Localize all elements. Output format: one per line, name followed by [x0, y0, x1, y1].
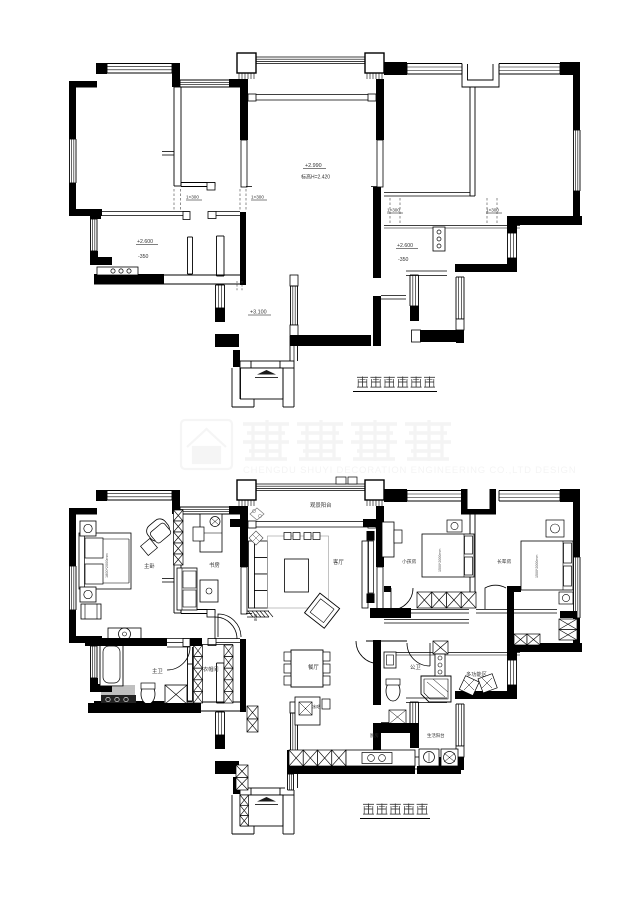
svg-text:厨房: 厨房 — [370, 732, 379, 739]
svg-text:1×300: 1×300 — [186, 195, 199, 200]
svg-text:衣帽间: 衣帽间 — [203, 665, 219, 673]
svg-text:-350: -350 — [398, 257, 408, 263]
svg-text:+3.100: +3.100 — [250, 310, 267, 316]
svg-text:1500*2000mm: 1500*2000mm — [438, 549, 442, 572]
svg-text:+2.990: +2.990 — [305, 163, 322, 169]
svg-text:书房: 书房 — [209, 561, 220, 569]
svg-text:CHENGDU SHUYI DECORATION ENGIN: CHENGDU SHUYI DECORATION ENGINEERING CO.… — [243, 465, 576, 476]
svg-text:主卫: 主卫 — [152, 667, 163, 675]
svg-text:公卫: 公卫 — [410, 664, 421, 671]
svg-text:1800*2000mm: 1800*2000mm — [105, 553, 109, 578]
svg-text:小孩房: 小孩房 — [402, 558, 417, 565]
svg-text:生活阳台: 生活阳台 — [427, 732, 445, 739]
svg-text:+2.600: +2.600 — [137, 239, 153, 245]
svg-text:-350: -350 — [138, 254, 148, 260]
svg-text:+2.600: +2.600 — [397, 243, 413, 249]
svg-text:1500*2000mm: 1500*2000mm — [535, 555, 539, 578]
svg-text:水吧: 水吧 — [312, 704, 321, 710]
svg-text:800: 800 — [253, 613, 258, 621]
svg-text:长辈房: 长辈房 — [497, 558, 512, 565]
svg-text:餐厅: 餐厅 — [308, 663, 319, 671]
svg-text:客厅: 客厅 — [333, 558, 344, 566]
svg-text:主卧: 主卧 — [144, 562, 155, 570]
svg-text:1×300: 1×300 — [387, 208, 400, 213]
svg-text:观景阳台: 观景阳台 — [310, 501, 332, 509]
svg-text:1×300: 1×300 — [486, 208, 499, 213]
svg-text:1×300: 1×300 — [251, 195, 264, 200]
svg-text:标高H=2.420: 标高H=2.420 — [301, 174, 330, 181]
